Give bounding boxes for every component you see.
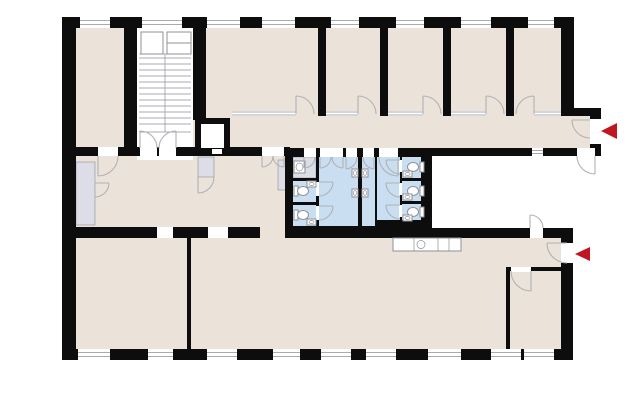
window	[142, 17, 182, 28]
south-block-north-wall	[432, 228, 573, 238]
door-opening	[320, 148, 343, 157]
sanitary-south-wall-right	[375, 220, 432, 238]
small-room-west-wall	[506, 271, 510, 349]
exterior-wall-west	[62, 17, 76, 360]
glazed-partition	[326, 111, 358, 116]
washbasin	[307, 219, 316, 225]
window	[207, 349, 237, 360]
kitchenette-counter	[393, 238, 461, 251]
window	[428, 349, 461, 360]
elevator-cab	[201, 124, 224, 148]
urinal-divider-wall	[358, 157, 362, 226]
stall-door-opening	[316, 206, 319, 220]
door-opening	[577, 148, 595, 156]
toilet	[294, 210, 309, 220]
floor-plan-drawing	[0, 0, 643, 404]
stall-partition	[402, 201, 425, 204]
exterior-wall-east-upper	[561, 17, 574, 116]
glazed-partition	[534, 111, 561, 116]
door-opening	[262, 147, 284, 156]
urinal	[362, 189, 368, 197]
urinal	[352, 189, 358, 197]
door-opening	[157, 227, 173, 238]
window	[396, 17, 424, 28]
stall-partition	[293, 202, 316, 205]
washbasin	[403, 215, 412, 221]
corridor-south-wall	[432, 148, 601, 156]
stairwell-west-wall	[124, 28, 137, 156]
window	[273, 349, 300, 360]
window	[491, 349, 521, 360]
stall-door-opening	[399, 160, 402, 172]
radiator	[278, 160, 286, 190]
urinal	[362, 169, 368, 177]
washbasin	[307, 181, 316, 187]
lower-room-divider	[187, 237, 191, 349]
exterior-wall-north	[62, 17, 574, 28]
window	[331, 17, 359, 28]
urinal	[352, 169, 358, 177]
toilet	[294, 186, 309, 196]
duct-shaft	[198, 157, 214, 177]
room-partition	[506, 28, 514, 116]
window	[524, 349, 554, 360]
elevator-door-opening	[212, 149, 222, 154]
door-opening	[159, 147, 176, 156]
sanitary-west-wall	[285, 148, 293, 238]
washbasin	[294, 161, 305, 173]
corridor-window	[532, 148, 543, 156]
stall-partition	[375, 157, 377, 222]
door-opening	[140, 147, 157, 156]
glazed-partition	[451, 111, 486, 116]
door-opening	[363, 148, 374, 157]
window	[461, 17, 491, 28]
door-opening	[379, 148, 398, 157]
window	[148, 349, 173, 360]
window	[321, 349, 351, 360]
window	[80, 17, 110, 28]
entrance-door-opening	[590, 119, 601, 144]
door-opening	[511, 267, 531, 272]
glazed-partition	[388, 111, 423, 116]
window	[207, 17, 240, 28]
stall-door-opening	[399, 183, 402, 195]
washbasin	[403, 194, 412, 200]
door-opening	[530, 228, 543, 238]
window	[262, 17, 295, 28]
stairwell-east-wall	[193, 28, 206, 120]
floor-plan-canvas	[0, 0, 643, 404]
room-partition	[318, 28, 326, 116]
door-opening	[98, 147, 118, 156]
stall-door-opening	[399, 205, 402, 217]
door-opening	[208, 227, 228, 238]
closet	[76, 162, 95, 225]
window	[528, 17, 554, 28]
washbasin	[403, 171, 412, 177]
window	[78, 349, 110, 360]
room-partition	[380, 28, 388, 116]
glazed-partition	[232, 111, 296, 116]
door-opening	[304, 148, 316, 157]
stall-partition	[402, 178, 425, 181]
door-opening	[346, 148, 357, 157]
entrance-door-opening	[561, 243, 573, 263]
room-partition	[443, 28, 451, 116]
window	[366, 349, 396, 360]
